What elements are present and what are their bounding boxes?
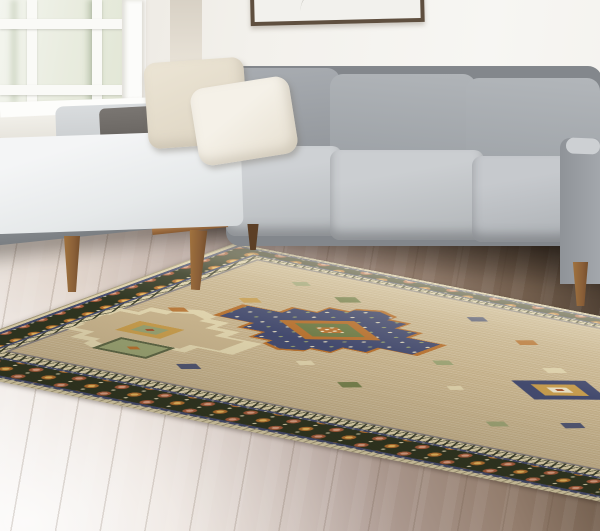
rug-partial-medallion: [589, 342, 600, 368]
sofa-seat-cushion: [330, 150, 484, 240]
rug-motif: [553, 420, 593, 430]
rug-motif: [441, 384, 469, 391]
rug-motif-dot: [123, 345, 144, 350]
rug-right-medallion: [486, 371, 600, 409]
throw-pillow: [189, 75, 300, 168]
living-room-scene: [0, 0, 600, 531]
rug-motif: [290, 359, 321, 367]
window-muntin-horizontal: [0, 85, 124, 95]
rug-motif: [286, 280, 316, 288]
framed-artwork: [249, 0, 424, 26]
sofa-right-arm-top: [566, 137, 600, 154]
rug-motif: [508, 338, 545, 347]
window-muntin-horizontal: [0, 19, 124, 29]
rug-motif: [461, 315, 494, 323]
sofa-seat-cushion: [472, 156, 572, 242]
rug-motif: [330, 380, 370, 390]
rug-motif: [479, 419, 516, 428]
rug-motif: [426, 358, 460, 367]
